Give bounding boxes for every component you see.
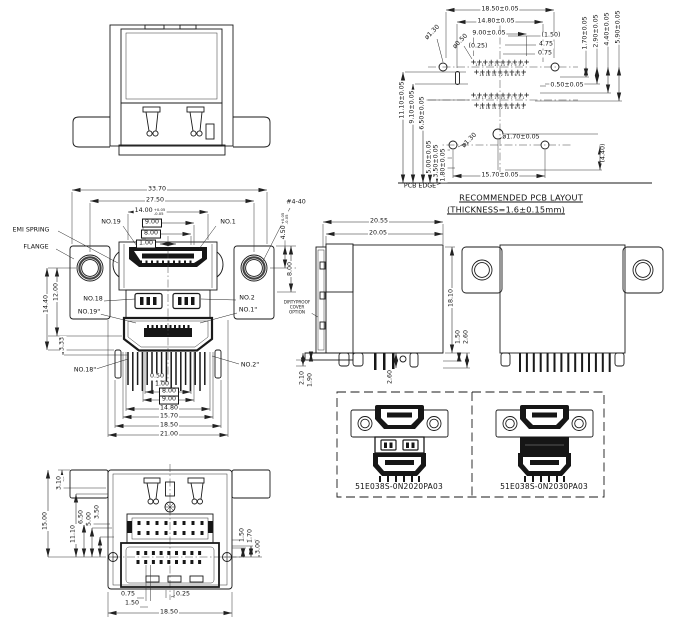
pcb-layout-subtitle: (THICKNESS=1.6±0.15mm) bbox=[446, 205, 566, 214]
dim-label: 0.25 bbox=[175, 592, 191, 599]
dim-label: 8.00 bbox=[288, 261, 295, 277]
dim-label: 2.10 bbox=[300, 370, 307, 386]
dim-label: 0.50±0.05 bbox=[549, 83, 584, 90]
callout-pin-no18-lower: NO.18" bbox=[73, 368, 97, 375]
callout-thread-4-40: #4-40 bbox=[285, 200, 307, 207]
callout-pin-no2: NO.2 bbox=[238, 296, 255, 303]
dim-label: 9.00 bbox=[142, 219, 162, 228]
dim-label: (1.50) bbox=[541, 33, 562, 40]
dim-label: 14.00+0.05-0.05 bbox=[134, 208, 167, 216]
dim-label: 15.70 bbox=[159, 414, 179, 421]
dim-label: 1.70 bbox=[248, 528, 255, 544]
pcb-edge-label: PCB EDGE bbox=[403, 184, 437, 191]
callout-pin-no1-lower: NO.1" bbox=[238, 308, 258, 315]
dim-label: 2.90±0.05 bbox=[594, 13, 601, 48]
technical-drawing-sheet: .o1{fill:none;stroke:#1a1a1a;stroke-widt… bbox=[0, 0, 690, 624]
dim-label: 2.60 bbox=[388, 369, 395, 385]
dim-label: 9.00 bbox=[159, 396, 179, 405]
dim-label: 1.50 bbox=[240, 527, 247, 543]
dim-label: 20.55 bbox=[369, 219, 389, 226]
product-right-drawing bbox=[496, 405, 593, 482]
dim-label: 4.50+0.05-0.05 bbox=[281, 212, 289, 241]
dim-label: 0.75 bbox=[537, 51, 553, 58]
dim-label: 15.00 bbox=[43, 511, 50, 531]
callout-pin-no19-lower: NO.19" bbox=[77, 310, 101, 317]
dim-label: (4.40) bbox=[601, 143, 608, 164]
callout-pin-no18: NO.18 bbox=[82, 297, 103, 304]
bottom-view-drawing bbox=[48, 464, 270, 617]
dim-label: 21.00 bbox=[159, 432, 179, 439]
dim-label: ø1.70±0.05 bbox=[501, 135, 540, 142]
dim-label: 5.90±0.05 bbox=[616, 9, 623, 44]
dim-label: 3.00 bbox=[256, 539, 263, 555]
dim-label: 20.05 bbox=[368, 231, 388, 238]
part-number-right: 51E038S-0N2030PA03 bbox=[499, 483, 589, 491]
drawing-canvas: .o1{fill:none;stroke:#1a1a1a;stroke-widt… bbox=[0, 0, 690, 624]
dim-label: 27.50 bbox=[145, 198, 165, 205]
dim-label: 12.00 bbox=[54, 282, 61, 302]
dim-label: 1.00 bbox=[136, 240, 156, 249]
dim-label: 6.50±0.05 bbox=[420, 95, 427, 130]
dim-label: 14.80 bbox=[159, 406, 179, 413]
dim-label: 9.10±0.05 bbox=[410, 89, 417, 124]
callout-pin-no19: NO.19 bbox=[100, 220, 121, 227]
dim-label: 5.00 bbox=[87, 511, 94, 527]
dim-label: 11.10 bbox=[71, 524, 78, 544]
dim-label: 33.70 bbox=[147, 187, 167, 194]
dim-label: 14.40 bbox=[44, 294, 51, 314]
callout-emi-spring: EMI SPRING bbox=[12, 228, 51, 235]
part-number-left: 51E038S-0N2020PA03 bbox=[354, 483, 444, 491]
dim-label: 1.50 bbox=[124, 601, 140, 608]
pin-numbers-row: 18 16 14 12 10 8 6 4 2 bbox=[478, 107, 525, 111]
dim-label: 9.00±0.05 bbox=[471, 31, 506, 38]
dim-label: 2.60 bbox=[464, 329, 471, 345]
dim-label: 1.50 bbox=[456, 329, 463, 345]
dim-label: (0.25) bbox=[468, 44, 489, 51]
callout-dirtyproof-cover-option: DIRTYPROOFCOVEROPTION bbox=[283, 299, 312, 314]
dim-label: 18.50±0.05 bbox=[480, 7, 519, 14]
callout-flange: FLANGE bbox=[22, 245, 49, 252]
dim-label: 4.75 bbox=[538, 42, 554, 49]
rear-view-drawing bbox=[462, 245, 663, 372]
dim-label: 18.50 bbox=[159, 610, 179, 617]
dim-label: 0.75 bbox=[120, 592, 136, 599]
dim-label: 8.00 bbox=[141, 230, 161, 239]
pin-numbers-row: 19 17 15 13 11 9 7 5 3 1 bbox=[474, 97, 525, 101]
dim-label: 14.80±0.05 bbox=[476, 19, 515, 26]
pcb-layout-title: RECOMMENDED PCB LAYOUT bbox=[458, 193, 584, 202]
dim-label: 18.10 bbox=[449, 288, 456, 308]
side-view-drawing bbox=[296, 222, 470, 370]
pin-numbers-row: 18 16 14 12 10 8 6 4 2 bbox=[478, 74, 525, 78]
pin-numbers-row: 19 17 15 13 11 9 7 5 3 1 bbox=[474, 64, 525, 68]
dim-label: 11.10±0.05 bbox=[400, 80, 407, 119]
callout-pin-no1: NO.1 bbox=[219, 220, 236, 227]
dim-label: 3.10 bbox=[57, 475, 64, 491]
dim-label: 3.33 bbox=[60, 336, 67, 352]
dim-label: 15.70±0.05 bbox=[480, 173, 519, 180]
callout-pin-no2-lower: NO.2" bbox=[240, 363, 260, 370]
product-left-drawing bbox=[351, 405, 448, 482]
dim-label: 6.50 bbox=[79, 509, 86, 525]
dim-label: 1.80±0.05 bbox=[441, 147, 448, 182]
dim-label: 18.50 bbox=[159, 423, 179, 430]
dim-label: 1.90 bbox=[308, 372, 315, 388]
dim-label: 0.50 bbox=[149, 374, 165, 381]
dim-label: 1.70±0.05 bbox=[583, 15, 590, 50]
dim-label: 4.40±0.05 bbox=[605, 11, 612, 46]
top-view-drawing bbox=[73, 25, 270, 155]
dim-label: 3.50 bbox=[95, 504, 102, 520]
